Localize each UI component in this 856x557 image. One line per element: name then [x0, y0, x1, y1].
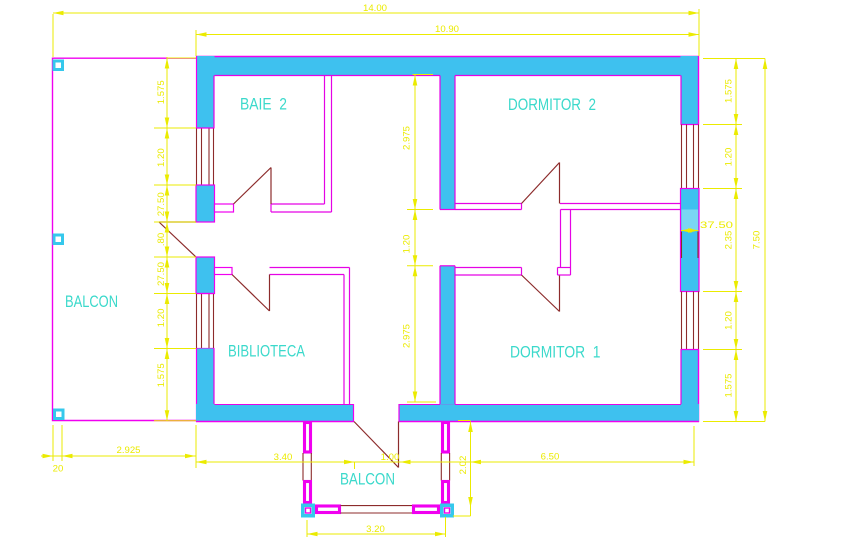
svg-text:1.20: 1.20: [724, 311, 735, 330]
svg-text:BALCON: BALCON: [340, 471, 395, 489]
svg-text:6.50: 6.50: [541, 452, 560, 463]
svg-text:27.50: 27.50: [156, 192, 167, 216]
svg-text:14.00: 14.00: [363, 3, 387, 14]
svg-text:10.90: 10.90: [435, 24, 459, 35]
svg-text:1.575: 1.575: [724, 373, 735, 397]
svg-text:2.975: 2.975: [402, 126, 413, 150]
svg-text:1.20: 1.20: [156, 148, 167, 167]
svg-text:1.20: 1.20: [724, 148, 735, 167]
svg-text:BIBLIOTECA: BIBLIOTECA: [228, 343, 305, 361]
svg-text:27.50: 27.50: [156, 262, 167, 286]
svg-text:20: 20: [53, 464, 64, 475]
svg-text:1.20: 1.20: [156, 309, 167, 328]
svg-text:2.02: 2.02: [458, 456, 469, 475]
svg-text:7.50: 7.50: [752, 231, 763, 250]
svg-text:1.575: 1.575: [156, 80, 167, 104]
svg-text:DORMITOR 1: DORMITOR 1: [510, 344, 601, 362]
svg-text:2.925: 2.925: [116, 445, 140, 456]
svg-text:3.20: 3.20: [366, 524, 385, 535]
svg-text:2.35: 2.35: [724, 231, 735, 250]
svg-text:1.575: 1.575: [156, 363, 167, 387]
svg-text:2.975: 2.975: [402, 324, 413, 348]
svg-text:37.50: 37.50: [700, 220, 733, 231]
svg-text:1.20: 1.20: [402, 235, 413, 254]
svg-text:.80: .80: [156, 233, 167, 246]
svg-text:1.00: 1.00: [381, 452, 400, 463]
svg-text:BAIE 2: BAIE 2: [240, 96, 287, 114]
svg-text:3.40: 3.40: [274, 452, 293, 463]
svg-text:1.575: 1.575: [724, 79, 735, 103]
svg-text:DORMITOR 2: DORMITOR 2: [508, 97, 596, 115]
svg-text:BALCON: BALCON: [65, 294, 118, 312]
